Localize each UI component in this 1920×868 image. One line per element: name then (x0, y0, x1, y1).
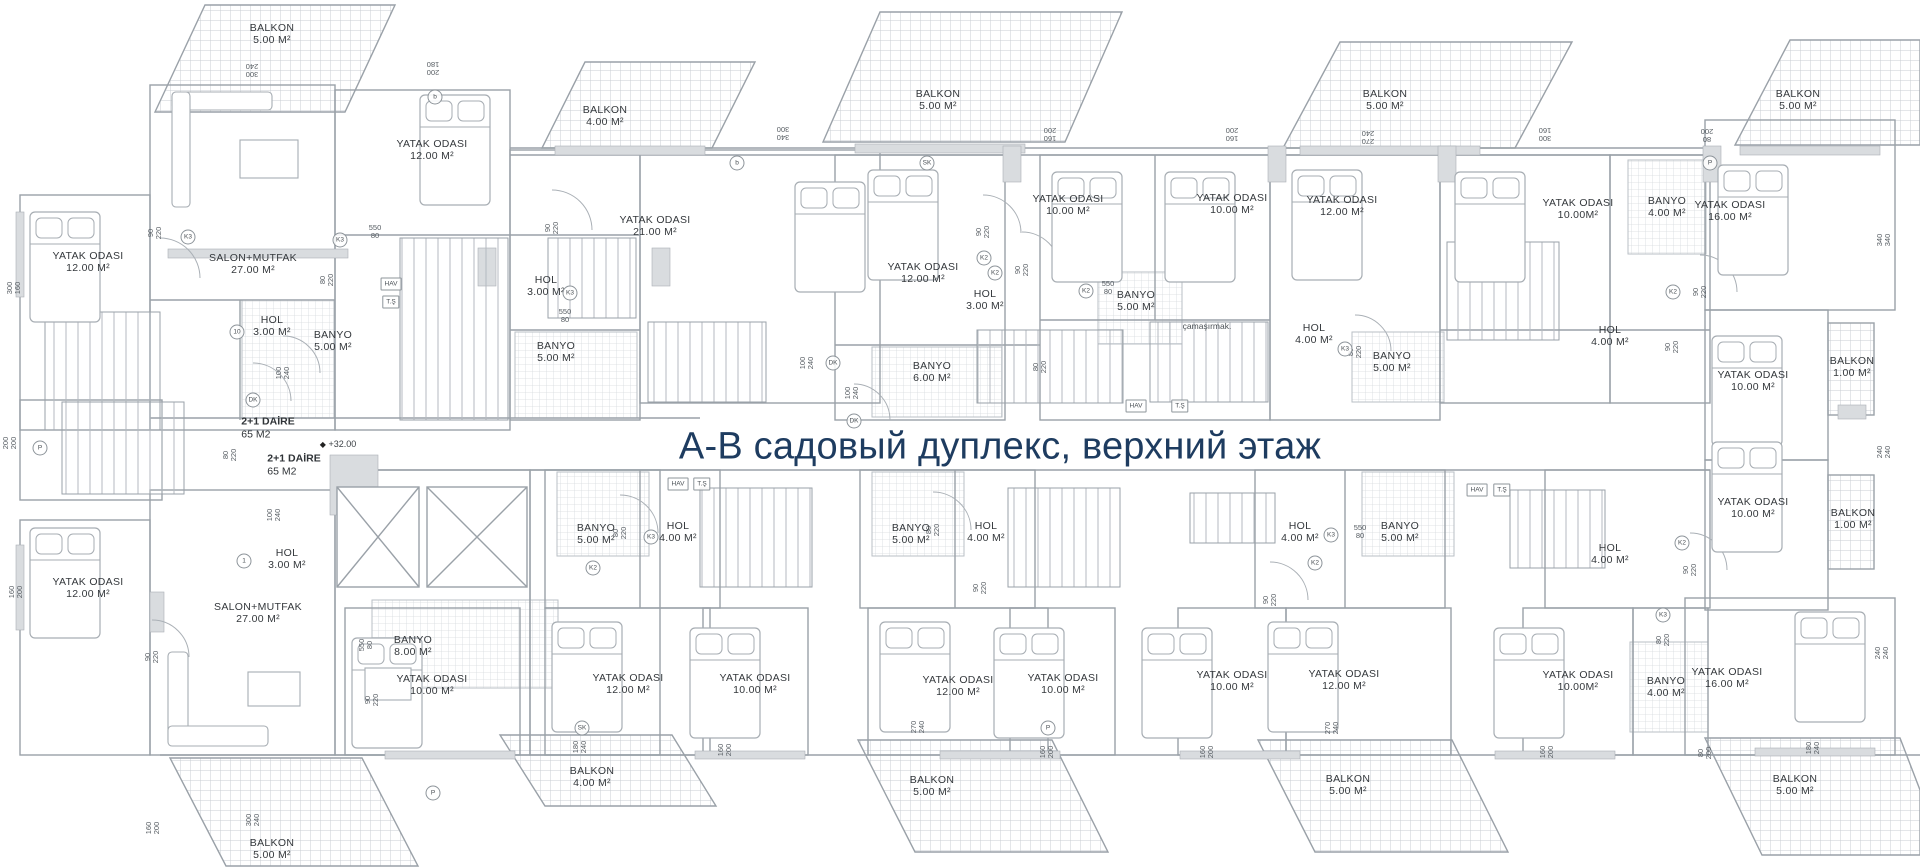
plan-marker: K2 (1666, 285, 1681, 300)
dimension-height: 240 (918, 721, 926, 734)
room-label: BALKON 5.00 M² (250, 837, 294, 861)
dimension-label: 550 80 (1354, 524, 1367, 540)
room-label: YATAK ODASI 12.00 M² (923, 674, 994, 698)
room-area: 12.00 M² (1309, 680, 1380, 692)
room-name: HOL (261, 314, 284, 326)
room-name: BANYO (537, 340, 575, 352)
dimension-width: 300 (1539, 134, 1552, 142)
room-name: SALON+MUTFAK (214, 601, 302, 613)
plan-marker: HAV (668, 478, 689, 491)
dimension-height: 240 (274, 509, 282, 522)
room-area: 4.00 M² (659, 532, 697, 544)
room-label: YATAK ODASI 12.00 M² (397, 138, 468, 162)
plan-labels-layer: А-В садовый дуплекс, верхний этаж BALKON… (0, 0, 1920, 868)
dimension-label: 550 80 (559, 308, 572, 324)
dimension-label: 80 220 (925, 524, 941, 537)
dimension-height: 180 (427, 60, 440, 68)
room-name: HOL (975, 520, 998, 532)
room-area: 6.00 M² (913, 372, 951, 384)
dimension-label: 100 240 (266, 509, 282, 522)
room-area: 4.00 M² (967, 532, 1005, 544)
room-name: YATAK ODASI (1543, 669, 1614, 681)
room-label: BALKON 5.00 M² (1363, 88, 1407, 112)
room-name: SALON+MUTFAK (209, 252, 297, 264)
unit-type: 2+1 DAİRE (267, 452, 320, 465)
dimension-height: 220 (620, 527, 628, 540)
plan-marker: K2 (977, 251, 992, 266)
plan-marker: K2 (1079, 284, 1094, 299)
dimension-label: 80 220 (612, 527, 628, 540)
room-name: BALKON (570, 765, 614, 777)
room-label: YATAK ODASI 10.00 M² (1033, 193, 1104, 217)
room-area: 5.00 M² (1381, 532, 1419, 544)
dimension-label: 240 240 (1874, 647, 1890, 660)
dimension-height: 80 (559, 316, 572, 324)
unit-label: 2+1 DAİRE 65 M2 (241, 415, 294, 440)
plan-marker: DK (246, 393, 261, 408)
dimension-height: 220 (1040, 361, 1048, 374)
dimension-label: 340 340 (1876, 234, 1892, 247)
dimension-label: 80 220 (319, 274, 335, 287)
plan-marker: K2 (586, 561, 601, 576)
room-label: YATAK ODASI 21.00 M² (620, 214, 691, 238)
plan-marker: HAV (381, 278, 402, 291)
room-area: 4.00 M² (1295, 334, 1333, 346)
plan-marker: K3 (1338, 342, 1353, 357)
room-label: HOL 4.00 M² (659, 520, 697, 544)
room-label: HOL 3.00 M² (253, 314, 291, 338)
dimension-label: 160 200 (1539, 746, 1555, 759)
dimension-label: 90 220 (147, 227, 163, 240)
room-area: 12.00 M² (923, 686, 994, 698)
room-name: YATAK ODASI (923, 674, 994, 686)
room-name: YATAK ODASI (53, 250, 124, 262)
plan-marker: K3 (181, 230, 196, 245)
dimension-height: 200 (153, 822, 161, 835)
dimension-label: 300 160 (6, 282, 22, 295)
dimension-label: 90 220 (972, 582, 988, 595)
dimension-height: 240 (283, 367, 291, 380)
room-area: 4.00 M² (1591, 554, 1629, 566)
room-label: BALKON 5.00 M² (250, 22, 294, 46)
room-name: BANYO (1647, 675, 1685, 687)
room-area: 10.00 M² (1718, 508, 1789, 520)
plan-marker: P (33, 441, 48, 456)
dimension-height: 80 (1102, 288, 1115, 296)
room-label: BANYO 8.00 M² (394, 634, 432, 658)
room-name: HOL (276, 547, 299, 559)
room-area: 4.00 M² (1648, 207, 1686, 219)
dimension-height: 220 (1022, 264, 1030, 277)
room-area: 21.00 M² (620, 226, 691, 238)
room-name: BANYO (1648, 195, 1686, 207)
dimension-height: 200 (1705, 747, 1713, 760)
dimension-label: 100 240 (844, 387, 860, 400)
plan-marker: P (426, 786, 441, 801)
room-name: HOL (1303, 322, 1326, 334)
dimension-height: 200 (10, 437, 18, 450)
dimension-height: 240 (1813, 742, 1821, 755)
dimension-width: 300 (246, 70, 259, 78)
plan-marker: T.Ş (1171, 400, 1188, 413)
dimension-height: 300 (777, 125, 790, 133)
unit-size: 65 M2 (267, 465, 320, 478)
room-label: BALKON 5.00 M² (1776, 88, 1820, 112)
dimension-label: 90 220 (975, 226, 991, 239)
room-label: YATAK ODASI 10.00 M² (720, 672, 791, 696)
room-area: 16.00 M² (1695, 211, 1766, 223)
room-area: 3.00 M² (253, 326, 291, 338)
room-label: YATAK ODASI 16.00 M² (1695, 199, 1766, 223)
dimension-width: 160 (1044, 134, 1057, 142)
room-name: BALKON (250, 837, 294, 849)
dimension-height: 240 (246, 62, 259, 70)
room-area: 5.00 M² (577, 534, 615, 546)
room-label: BANYO 5.00 M² (537, 340, 575, 364)
room-label: YATAK ODASI 10.00 M² (397, 673, 468, 697)
dimension-height: 220 (980, 582, 988, 595)
room-name: HOL (974, 288, 997, 300)
room-label: BANYO 4.00 M² (1648, 195, 1686, 219)
room-name: YATAK ODASI (1197, 192, 1268, 204)
room-area: 1.00 M² (1830, 367, 1874, 379)
plan-marker: P (1041, 721, 1056, 736)
room-name: BALKON (1326, 773, 1370, 785)
dimension-label: 160 200 (145, 822, 161, 835)
dimension-height: 340 (1884, 234, 1892, 247)
plan-marker: T.Ş (693, 478, 710, 491)
room-label: HOL 4.00 M² (967, 520, 1005, 544)
dimension-label: 300 240 (245, 814, 261, 827)
dimension-label: 160 200 (8, 586, 24, 599)
dimension-label: 300 240 (246, 62, 259, 78)
room-name: BALKON (910, 774, 954, 786)
room-name: YATAK ODASI (1307, 194, 1378, 206)
plan-marker: 10 (230, 325, 245, 340)
room-area: 5.00 M² (1117, 301, 1155, 313)
room-name: HOL (1599, 542, 1622, 554)
room-label: BALKON 1.00 M² (1830, 355, 1874, 379)
room-area: 12.00 M² (1307, 206, 1378, 218)
room-area: 5.00 M² (1773, 785, 1817, 797)
room-label: HOL 4.00 M² (1295, 322, 1333, 346)
room-area: 5.00 M² (916, 100, 960, 112)
dimension-label: 160 200 (1199, 746, 1215, 759)
room-name: HOL (535, 274, 558, 286)
plan-marker: HAV (1126, 400, 1147, 413)
room-label: BALKON 5.00 M² (1773, 773, 1817, 797)
room-area: 27.00 M² (214, 613, 302, 625)
dimension-label: 240 240 (1876, 446, 1892, 459)
room-area: 1.00 M² (1831, 519, 1875, 531)
plan-annotation: çamaşırmak. (1183, 321, 1232, 331)
dimension-label: 90 220 (1664, 341, 1680, 354)
page-title: А-В садовый дуплекс, верхний этаж (679, 426, 1321, 469)
plan-marker: K2 (1675, 536, 1690, 551)
room-name: BALKON (1831, 507, 1875, 519)
room-name: YATAK ODASI (1695, 199, 1766, 211)
dimension-label: 90 220 (1262, 594, 1278, 607)
room-area: 4.00 M² (1647, 687, 1685, 699)
room-label: YATAK ODASI 10.00M² (1543, 669, 1614, 693)
plan-marker: SK (920, 156, 935, 171)
dimension-height: 200 (1701, 127, 1714, 135)
room-label: HOL 4.00 M² (1281, 520, 1319, 544)
room-area: 12.00 M² (397, 150, 468, 162)
room-label: YATAK ODASI 12.00 M² (1307, 194, 1378, 218)
room-name: YATAK ODASI (620, 214, 691, 226)
plan-marker: HAV (1467, 484, 1488, 497)
room-label: YATAK ODASI 10.00M² (1543, 197, 1614, 221)
room-label: YATAK ODASI 10.00 M² (1028, 672, 1099, 696)
room-name: BALKON (1830, 355, 1874, 367)
unit-size: 65 M2 (241, 428, 294, 441)
room-area: 3.00 M² (966, 300, 1004, 312)
dimension-label: 180 240 (1805, 742, 1821, 755)
dimension-height: 220 (1672, 341, 1680, 354)
room-area: 5.00 M² (1776, 100, 1820, 112)
room-name: YATAK ODASI (1718, 369, 1789, 381)
dimension-height: 220 (152, 651, 160, 664)
dimension-height: 160 (1539, 126, 1552, 134)
dimension-height: 200 (16, 586, 24, 599)
dimension-label: 180 240 (572, 741, 588, 754)
dimension-label: 340 300 (777, 125, 790, 141)
dimension-label: 90 220 (1692, 286, 1708, 299)
benchmark-icon: ◆ (320, 440, 326, 449)
dimension-label: 270 240 (910, 721, 926, 734)
dimension-height: 220 (552, 222, 560, 235)
room-name: YATAK ODASI (1028, 672, 1099, 684)
room-area: 10.00 M² (1197, 681, 1268, 693)
dimension-label: 270 240 (1362, 129, 1375, 145)
dimension-label: 160 200 (1226, 126, 1239, 142)
dimension-height: 220 (933, 524, 941, 537)
room-label: BALKON 4.00 M² (570, 765, 614, 789)
room-name: BALKON (583, 104, 627, 116)
room-area: 5.00 M² (910, 786, 954, 798)
room-area: 12.00 M² (53, 588, 124, 600)
room-area: 5.00 M² (537, 352, 575, 364)
dimension-height: 80 (1354, 532, 1367, 540)
room-label: YATAK ODASI 10.00 M² (1197, 669, 1268, 693)
room-label: BALKON 4.00 M² (583, 104, 627, 128)
dimension-height: 220 (230, 449, 238, 462)
room-name: BALKON (250, 22, 294, 34)
dimension-height: 160 (14, 282, 22, 295)
room-area: 4.00 M² (1281, 532, 1319, 544)
room-area: 10.00 M² (1028, 684, 1099, 696)
room-label: HOL 3.00 M² (527, 274, 565, 298)
room-area: 8.00 M² (394, 646, 432, 658)
dimension-height: 220 (327, 274, 335, 287)
room-name: YATAK ODASI (1543, 197, 1614, 209)
room-area: 27.00 M² (209, 264, 297, 276)
unit-label: 2+1 DAİRE 65 M2 (267, 452, 320, 477)
room-label: BANYO 6.00 M² (913, 360, 951, 384)
plan-marker: P (1703, 156, 1718, 171)
plan-marker: b (428, 90, 443, 105)
plan-marker: SK (575, 721, 590, 736)
room-label: BANYO 5.00 M² (1117, 289, 1155, 313)
dimension-height: 220 (1663, 634, 1671, 647)
room-name: YATAK ODASI (1033, 193, 1104, 205)
dimension-label: 90 220 (1682, 564, 1698, 577)
dimension-label: 80 220 (1032, 361, 1048, 374)
room-area: 10.00 M² (720, 684, 791, 696)
dimension-label: 550 80 (1102, 280, 1115, 296)
room-area: 4.00 M² (1591, 336, 1629, 348)
room-area: 5.00 M² (1326, 785, 1370, 797)
room-name: BANYO (1381, 520, 1419, 532)
plan-marker: K2 (1308, 556, 1323, 571)
room-area: 3.00 M² (268, 559, 306, 571)
dimension-height: 240 (1882, 647, 1890, 660)
room-label: BALKON 1.00 M² (1831, 507, 1875, 531)
room-name: BANYO (913, 360, 951, 372)
dimension-height: 220 (372, 694, 380, 707)
room-area: 10.00M² (1543, 209, 1614, 221)
dimension-width: 80 (1701, 135, 1714, 143)
room-label: BALKON 5.00 M² (916, 88, 960, 112)
dimension-label: 160 200 (1044, 126, 1057, 142)
room-label: YATAK ODASI 10.00 M² (1718, 496, 1789, 520)
dimension-height: 80 (369, 232, 382, 240)
room-label: BALKON 5.00 M² (1326, 773, 1370, 797)
room-area: 5.00 M² (1373, 362, 1411, 374)
plan-marker: K3 (1656, 608, 1671, 623)
room-area: 10.00 M² (1033, 205, 1104, 217)
dimension-height: 220 (983, 226, 991, 239)
dimension-label: 90 220 (364, 694, 380, 707)
dimension-label: 100 240 (275, 367, 291, 380)
room-name: YATAK ODASI (720, 672, 791, 684)
room-name: YATAK ODASI (1197, 669, 1268, 681)
plan-marker: 1 (237, 554, 252, 569)
dimension-label: 80 220 (1655, 634, 1671, 647)
dimension-height: 220 (1690, 564, 1698, 577)
plan-marker: K3 (333, 233, 348, 248)
plan-marker: T.Ş (382, 296, 399, 309)
plan-marker: K3 (1324, 528, 1339, 543)
dimension-label: 90 220 (544, 222, 560, 235)
plan-marker: DK (826, 356, 841, 371)
dimension-height: 200 (725, 744, 733, 757)
room-label: HOL 4.00 M² (1591, 324, 1629, 348)
room-area: 12.00 M² (593, 684, 664, 696)
room-name: HOL (667, 520, 690, 532)
dimension-height: 220 (1700, 286, 1708, 299)
room-name: BANYO (1117, 289, 1155, 301)
room-label: YATAK ODASI 12.00 M² (53, 250, 124, 274)
room-label: YATAK ODASI 12.00 M² (888, 261, 959, 285)
room-name: YATAK ODASI (397, 673, 468, 685)
room-area: 5.00 M² (1363, 100, 1407, 112)
room-label: BANYO 5.00 M² (577, 522, 615, 546)
room-name: HOL (1289, 520, 1312, 532)
room-name: YATAK ODASI (53, 576, 124, 588)
room-label: HOL 4.00 M² (1591, 542, 1629, 566)
room-area: 5.00 M² (250, 34, 294, 46)
room-label: YATAK ODASI 10.00 M² (1718, 369, 1789, 393)
dimension-label: 90 220 (144, 651, 160, 664)
dimension-height: 80 (366, 639, 374, 652)
room-name: YATAK ODASI (1309, 668, 1380, 680)
room-name: YATAK ODASI (1718, 496, 1789, 508)
room-label: YATAK ODASI 12.00 M² (53, 576, 124, 600)
room-label: BANYO 5.00 M² (1381, 520, 1419, 544)
room-label: BANYO 5.00 M² (314, 329, 352, 353)
room-label: YATAK ODASI 12.00 M² (1309, 668, 1380, 692)
room-name: BANYO (577, 522, 615, 534)
dimension-height: 200 (1547, 746, 1555, 759)
unit-type: 2+1 DAİRE (241, 415, 294, 428)
room-area: 4.00 M² (570, 777, 614, 789)
plan-marker: K3 (644, 530, 659, 545)
plan-marker: K3 (563, 286, 578, 301)
room-area: 16.00 M² (1692, 678, 1763, 690)
room-area: 5.00 M² (250, 849, 294, 861)
room-area: 3.00 M² (527, 286, 565, 298)
dimension-label: 550 80 (358, 639, 374, 652)
dimension-label: 80 200 (1697, 747, 1713, 760)
dimension-height: 240 (1362, 129, 1375, 137)
dimension-height: 240 (580, 741, 588, 754)
dimension-label: 200 180 (427, 60, 440, 76)
room-name: BALKON (1773, 773, 1817, 785)
dimension-height: 240 (852, 387, 860, 400)
dimension-height: 200 (1207, 746, 1215, 759)
dimension-label: 80 220 (222, 449, 238, 462)
plan-marker: T.Ş (1493, 484, 1510, 497)
dimension-width: 340 (777, 133, 790, 141)
dimension-label: 160 200 (1039, 746, 1055, 759)
dimension-height: 200 (1047, 746, 1055, 759)
room-label: YATAK ODASI 10.00 M² (1197, 192, 1268, 216)
dimension-height: 240 (807, 357, 815, 370)
dimension-height: 220 (1270, 594, 1278, 607)
plan-marker: K2 (988, 266, 1003, 281)
dimension-height: 220 (1355, 346, 1363, 359)
room-name: YATAK ODASI (888, 261, 959, 273)
plan-marker: b (730, 156, 745, 171)
room-name: BALKON (1776, 88, 1820, 100)
room-label: BALKON 5.00 M² (910, 774, 954, 798)
room-name: BANYO (1373, 350, 1411, 362)
room-label: YATAK ODASI 12.00 M² (593, 672, 664, 696)
room-label: BANYO 5.00 M² (1373, 350, 1411, 374)
room-name: BALKON (1363, 88, 1407, 100)
room-area: 4.00 M² (583, 116, 627, 128)
dimension-width: 160 (1226, 134, 1239, 142)
dimension-width: 270 (1362, 137, 1375, 145)
dimension-height: 240 (1884, 446, 1892, 459)
room-label: HOL 3.00 M² (966, 288, 1004, 312)
room-name: YATAK ODASI (1692, 666, 1763, 678)
dimension-height: 240 (1332, 722, 1340, 735)
room-area: 12.00 M² (888, 273, 959, 285)
room-name: BANYO (394, 634, 432, 646)
dimension-width: 200 (427, 68, 440, 76)
room-name: YATAK ODASI (397, 138, 468, 150)
room-name: YATAK ODASI (593, 672, 664, 684)
room-label: SALON+MUTFAK 27.00 M² (214, 601, 302, 625)
dimension-height: 240 (253, 814, 261, 827)
dimension-label: 90 220 (1014, 264, 1030, 277)
room-area: 10.00 M² (397, 685, 468, 697)
room-label: SALON+MUTFAK 27.00 M² (209, 252, 297, 276)
room-name: HOL (1599, 324, 1622, 336)
